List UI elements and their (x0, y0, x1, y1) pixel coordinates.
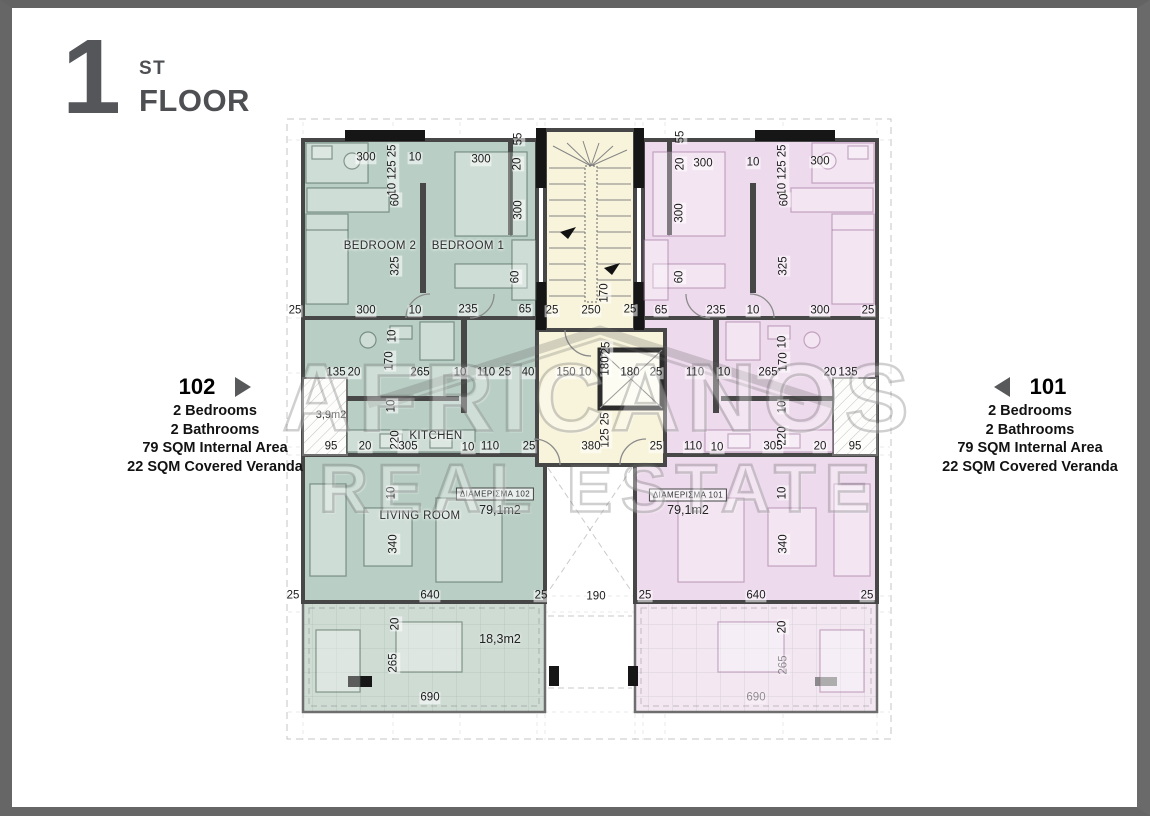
apartment-102-internal-area: 79 SQM Internal Area (110, 439, 320, 458)
elevator-shaft (600, 350, 662, 408)
apartment-101-header: 101 (925, 374, 1135, 400)
apartment-101-summary: 101 2 Bedrooms 2 Bathrooms 79 SQM Intern… (925, 374, 1135, 476)
apartment-101-bathrooms: 2 Bathrooms (925, 421, 1135, 440)
apartment-101-number: 101 (1030, 374, 1067, 400)
apartment-101-internal-area: 79 SQM Internal Area (925, 439, 1135, 458)
apartment-102-summary: 102 2 Bedrooms 2 Bathrooms 79 SQM Intern… (110, 374, 320, 476)
floor-title-side: ST FLOOR (139, 34, 250, 121)
apartment-102-number: 102 (179, 374, 216, 400)
apartment-102-veranda-area: 22 SQM Covered Veranda (110, 458, 320, 477)
apartment-102-bathrooms: 2 Bathrooms (110, 421, 320, 440)
arrow-right-icon (235, 377, 251, 397)
apartment-102-bedrooms: 2 Bedrooms (110, 402, 320, 421)
apartment-101-veranda-area: 22 SQM Covered Veranda (925, 458, 1135, 477)
arrow-left-icon (994, 377, 1010, 397)
light-well (548, 468, 632, 688)
floor-title: 1 ST FLOOR (62, 34, 250, 121)
floor-ordinal-suffix: ST (139, 58, 250, 80)
apartment-101-bedrooms: 2 Bedrooms (925, 402, 1135, 421)
apartment-102-header: 102 (110, 374, 320, 400)
floor-word: FLOOR (139, 83, 250, 119)
floor-number: 1 (62, 34, 119, 121)
